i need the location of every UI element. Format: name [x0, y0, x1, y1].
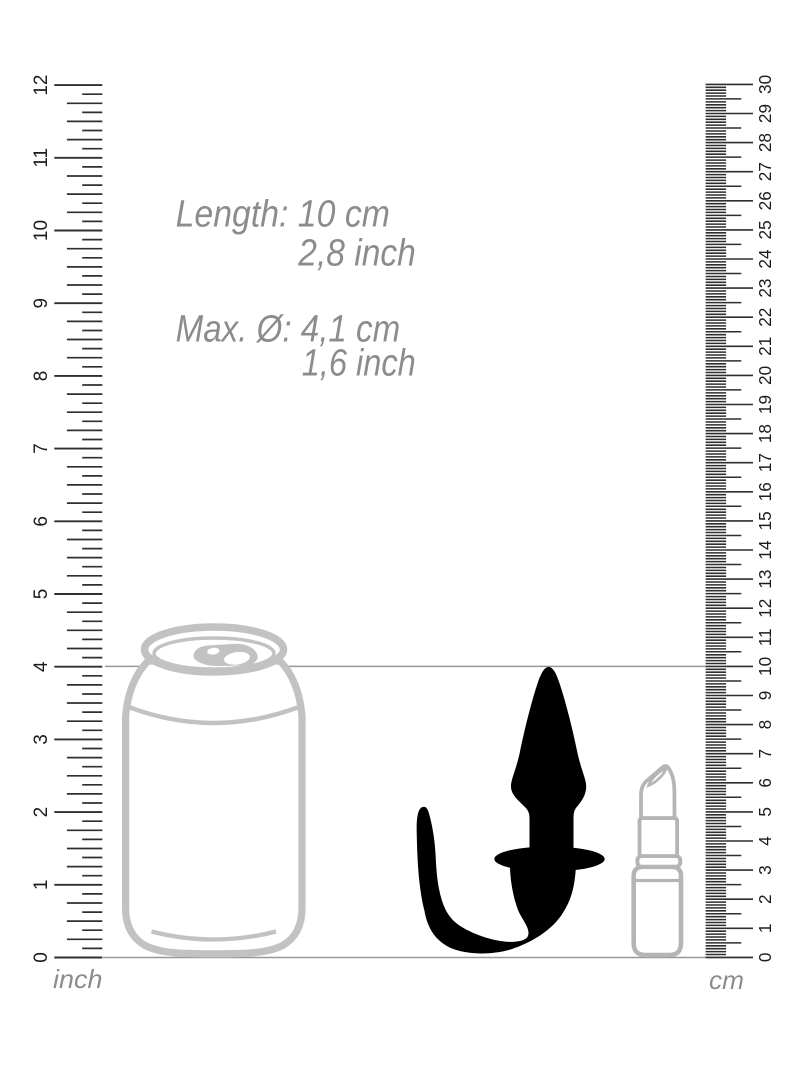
svg-text:4: 4: [755, 836, 775, 846]
svg-text:12: 12: [755, 599, 775, 618]
svg-text:25: 25: [755, 220, 775, 239]
svg-text:26: 26: [755, 191, 775, 210]
svg-text:16: 16: [755, 482, 775, 501]
svg-text:11: 11: [31, 148, 52, 168]
svg-text:20: 20: [755, 366, 775, 385]
svg-text:17: 17: [755, 453, 775, 472]
svg-text:29: 29: [755, 104, 775, 123]
svg-text:0: 0: [31, 952, 52, 963]
svg-text:inch: inch: [53, 964, 103, 994]
svg-text:9: 9: [755, 691, 775, 701]
svg-text:1: 1: [755, 924, 775, 934]
svg-text:21: 21: [755, 337, 775, 356]
svg-text:8: 8: [755, 720, 775, 730]
svg-text:cm: cm: [709, 965, 744, 995]
svg-text:3: 3: [31, 734, 52, 745]
svg-text:7: 7: [755, 749, 775, 759]
svg-text:15: 15: [755, 511, 775, 530]
svg-text:6: 6: [755, 778, 775, 788]
svg-text:30: 30: [755, 75, 775, 94]
svg-text:10: 10: [31, 220, 52, 241]
svg-text:24: 24: [755, 249, 775, 269]
svg-text:6: 6: [31, 516, 52, 527]
svg-text:27: 27: [755, 162, 775, 181]
svg-text:2,8 inch: 2,8 inch: [297, 233, 415, 275]
svg-text:8: 8: [31, 371, 52, 382]
svg-text:2: 2: [31, 807, 52, 818]
svg-text:12: 12: [31, 75, 52, 96]
svg-text:28: 28: [755, 133, 775, 152]
svg-text:5: 5: [755, 807, 775, 817]
svg-text:22: 22: [755, 308, 775, 327]
svg-text:1: 1: [31, 880, 52, 891]
svg-text:Length: 10 cm: Length: 10 cm: [176, 194, 390, 236]
svg-text:18: 18: [755, 424, 775, 443]
svg-text:14: 14: [755, 540, 775, 560]
svg-text:1,6 inch: 1,6 inch: [302, 342, 416, 384]
svg-text:23: 23: [755, 279, 775, 298]
svg-text:13: 13: [755, 570, 775, 589]
svg-text:9: 9: [31, 298, 52, 309]
svg-text:5: 5: [31, 589, 52, 600]
svg-text:2: 2: [755, 894, 775, 904]
svg-text:3: 3: [755, 865, 775, 875]
svg-text:11: 11: [755, 628, 775, 646]
svg-text:10: 10: [755, 657, 775, 676]
svg-text:19: 19: [755, 395, 775, 414]
svg-text:7: 7: [31, 443, 52, 454]
svg-text:4: 4: [31, 661, 52, 672]
svg-text:0: 0: [755, 953, 775, 963]
